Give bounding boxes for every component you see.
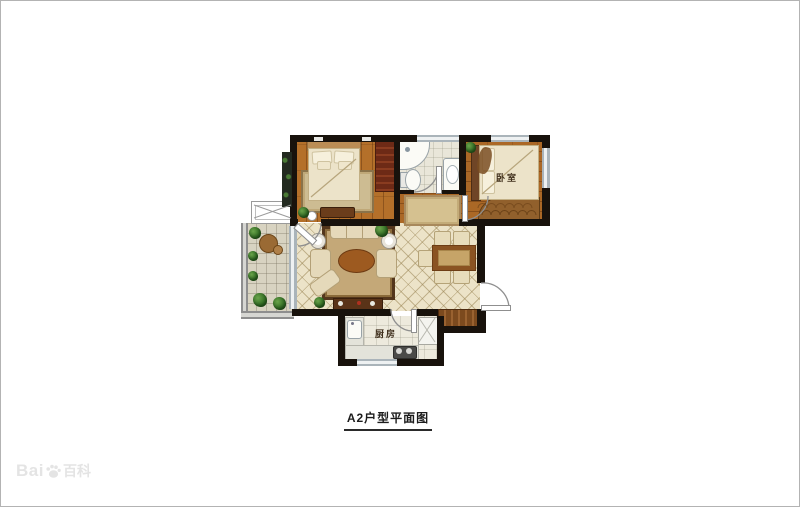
fridge-hatch [419, 318, 435, 342]
floor-plan-page: 卧室 厨房 [0, 0, 800, 507]
bedroom2-label: 卧室 [487, 171, 527, 184]
watermark-latin: Bai [16, 461, 44, 481]
entrance-door [481, 305, 511, 311]
paw-icon [45, 463, 62, 479]
watermark-cjk: 百科 [63, 461, 91, 481]
bathroom-door [436, 166, 442, 194]
door-swing-arcs [1, 1, 800, 507]
kitchen-door [411, 309, 417, 333]
bedroom2-door [462, 195, 468, 222]
floor-plan: 卧室 厨房 [1, 1, 800, 507]
platform-x-mark [254, 205, 291, 218]
plan-caption: A2户型平面图 [344, 409, 432, 431]
kitchen-label: 厨房 [369, 327, 403, 340]
baidu-watermark: Bai 百科 [16, 461, 91, 481]
bathroom-door-arc [414, 168, 438, 192]
